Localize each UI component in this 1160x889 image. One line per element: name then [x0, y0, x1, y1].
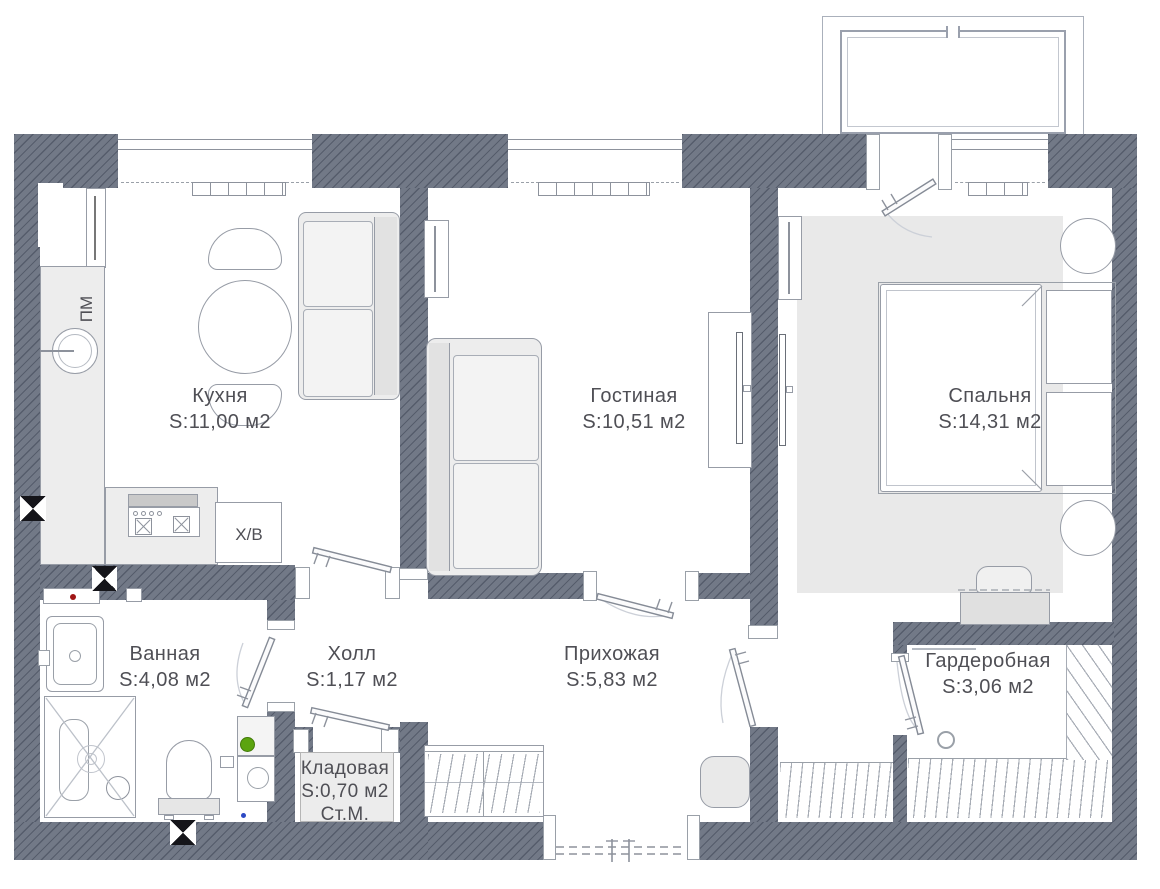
door-storage-leaf: [312, 711, 386, 727]
tv-screen-bedroom: [779, 334, 786, 446]
living-sofa: [426, 338, 542, 576]
stove-knob: [149, 511, 154, 516]
room-name: Ванная: [65, 641, 265, 667]
wall-bottom-right: [698, 822, 1137, 860]
wall-top-mid-1: [312, 134, 508, 188]
radiator-bedroom: [968, 182, 1028, 196]
jamb-cap: [583, 571, 597, 601]
room-label-kitchen: Кухня S:11,00 м2: [120, 383, 320, 435]
dining-table: [198, 280, 292, 374]
floor-plan: ПМ Х/В: [0, 0, 1160, 889]
living-cabinet: [424, 220, 449, 298]
wall-top-mid-2: [682, 134, 866, 188]
sofa-cushion: [453, 355, 539, 461]
dining-chair: [208, 228, 282, 270]
kitchen-sofa: [298, 212, 400, 400]
room-area: S:3,06 м2: [878, 674, 1098, 700]
wardrobe-stool: [937, 731, 955, 749]
sofa-back: [429, 343, 450, 571]
nightstand: [1060, 500, 1116, 556]
jamb-cap: [267, 702, 295, 712]
jamb-cap-entrance-right: [687, 815, 700, 860]
room-label-entry: Прихожая S:5,83 м2: [512, 641, 712, 693]
room-name: Холл: [252, 641, 452, 667]
jamb-cap: [685, 571, 699, 601]
room-label-wardrobe: Гардеробная S:3,06 м2: [878, 648, 1098, 700]
jamb-cap-balcony-right: [938, 134, 952, 190]
room-area: S:10,51 м2: [534, 409, 734, 435]
tv-screen-living: [736, 332, 743, 444]
window-glass: [508, 139, 682, 150]
door-kitchen-hall-leaf: [314, 551, 388, 569]
jamb-cap-balcony-left: [866, 134, 880, 190]
window-kitchen: [118, 134, 312, 188]
bedroom-cabinet-line: [788, 222, 790, 294]
washbasin-tap: [38, 650, 50, 666]
sofa-back: [374, 217, 397, 395]
wall-living-south: [428, 573, 597, 599]
sofa-cushion: [453, 463, 539, 569]
stove: [128, 507, 200, 537]
room-area: S:1,17 м2: [252, 667, 452, 693]
stove-knob: [141, 511, 146, 516]
balcony-mullion-tick: [946, 26, 960, 38]
jamb-cap: [381, 729, 399, 753]
toilet-bowl: [166, 740, 212, 800]
wall-wardrobe-north: [893, 622, 1114, 645]
bed-pillow: [1046, 290, 1112, 384]
room-name: Кладовая: [255, 757, 435, 780]
room-area: S:11,00 м2: [120, 409, 320, 435]
wardrobe-hanging-rod: [908, 758, 1112, 818]
wall-niche: [38, 183, 63, 247]
toilet-foot: [204, 815, 214, 820]
jamb-cap: [385, 567, 400, 599]
fridge-label: Х/В: [220, 525, 278, 545]
kitchen-tall-cabinet: [86, 188, 106, 268]
shower-drain: [106, 776, 130, 800]
room-area: S:14,31 м2: [890, 409, 1090, 435]
entry-closet: [424, 745, 544, 817]
green-dot-marker: [240, 737, 255, 752]
entrance-door-threshold: [556, 839, 686, 862]
towel-rail-symbol: [126, 588, 142, 602]
tv-mount-bedroom: [786, 386, 793, 393]
red-dot-marker: [70, 594, 76, 600]
room-label-bathroom: Ванная S:4,08 м2: [65, 641, 265, 693]
room-label-bedroom: Спальня S:14,31 м2: [890, 383, 1090, 435]
jamb-cap: [295, 567, 310, 599]
nightstand: [1060, 218, 1116, 274]
vent-marker-icon: [170, 820, 196, 845]
room-name: Гардеробная: [878, 648, 1098, 674]
window-living: [508, 134, 682, 188]
balcony-glazing-inner: [847, 37, 1059, 127]
room-name: Гостиная: [534, 383, 734, 409]
stove-knob: [157, 511, 162, 516]
room-label-hall: Холл S:1,17 м2: [252, 641, 452, 693]
dishwasher-label: ПМ: [77, 287, 99, 331]
wall-top-right-corner: [1048, 134, 1137, 188]
blue-dot-marker: [241, 813, 246, 818]
window-glass: [952, 139, 1048, 150]
hygiene-tap-symbol: [220, 756, 234, 768]
jamb-cap: [748, 625, 778, 639]
tv-mount: [743, 385, 751, 392]
jamb-cap-entrance-left: [543, 815, 556, 860]
room-name: Кухня: [120, 383, 320, 409]
jamb-cap: [398, 568, 428, 580]
wall-bottom-left: [14, 822, 543, 860]
room-name: Прихожая: [512, 641, 712, 667]
wall-living-bedroom-divider: [750, 188, 778, 630]
door-bedroom-leaf: [733, 652, 752, 723]
jamb-cap: [267, 620, 295, 630]
closet-rail: [425, 751, 543, 752]
toilet-tank: [158, 798, 220, 815]
kitchen-sink-tap: [40, 350, 74, 352]
room-name: Спальня: [890, 383, 1090, 409]
balcony-door-opening: [880, 136, 938, 188]
nook-hanging-rod: [780, 762, 893, 818]
room-label-living: Гостиная S:10,51 м2: [534, 383, 734, 435]
living-cabinet-line: [434, 226, 436, 292]
room-label-storage: Кладовая S:0,70 м2 Ст.М.: [255, 757, 435, 826]
bedroom-chair: [976, 566, 1032, 593]
stove-burner: [135, 518, 152, 535]
stove-burner: [173, 516, 190, 533]
stove-hood: [128, 494, 198, 507]
window-bedroom: [952, 134, 1048, 188]
closet-hangers: [428, 754, 540, 813]
kitchen-cabinet-line: [94, 196, 96, 260]
jamb-cap: [293, 729, 309, 753]
room-area: S:4,08 м2: [65, 667, 265, 693]
wall-entry-nook-divider: [750, 727, 778, 822]
shower-tray: [44, 696, 136, 818]
radiator-kitchen: [192, 182, 286, 196]
bedroom-desk: [960, 592, 1050, 625]
sofa-cushion: [303, 221, 373, 307]
pouf: [700, 756, 750, 808]
vent-marker-icon: [20, 496, 46, 521]
door-living-entry-leaf: [600, 597, 672, 615]
bedroom-wardrobe-cabinet: [778, 216, 802, 300]
room-area: S:5,83 м2: [512, 667, 712, 693]
shower-head-mark-inner: [85, 753, 97, 765]
radiator-living: [538, 182, 650, 196]
stove-knob: [133, 511, 138, 516]
wall-wardrobe-partition-lower: [893, 735, 907, 822]
vent-marker-icon: [92, 566, 117, 591]
wall-living-south-stub: [693, 573, 750, 599]
room-note: Ст.М.: [255, 803, 435, 826]
room-area: S:0,70 м2: [255, 780, 435, 803]
window-glass: [118, 139, 312, 150]
